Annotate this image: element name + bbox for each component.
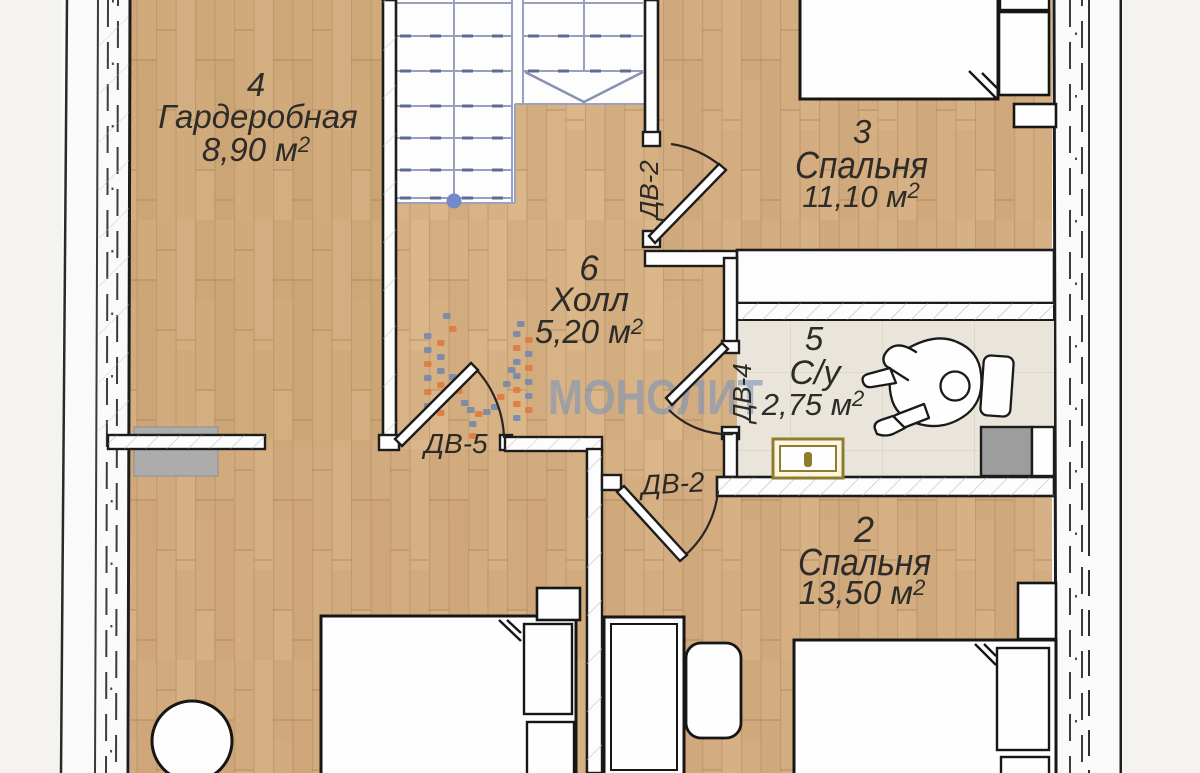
- svg-text:ДВ-2: ДВ-2: [634, 160, 664, 222]
- svg-text:8,90 м2: 8,90 м2: [202, 131, 310, 168]
- svg-text:11,10 м2: 11,10 м2: [802, 178, 919, 214]
- svg-text:2,75 м2: 2,75 м2: [761, 386, 864, 422]
- svg-text:ДВ-5: ДВ-5: [421, 428, 488, 459]
- svg-text:5: 5: [805, 320, 824, 357]
- svg-text:ДВ-4: ДВ-4: [727, 363, 757, 425]
- svg-text:13,50 м2: 13,50 м2: [799, 574, 926, 611]
- svg-text:5,20 м2: 5,20 м2: [535, 313, 643, 350]
- svg-text:Гардеробная: Гардеробная: [158, 98, 358, 135]
- svg-text:ДВ-2: ДВ-2: [637, 466, 705, 500]
